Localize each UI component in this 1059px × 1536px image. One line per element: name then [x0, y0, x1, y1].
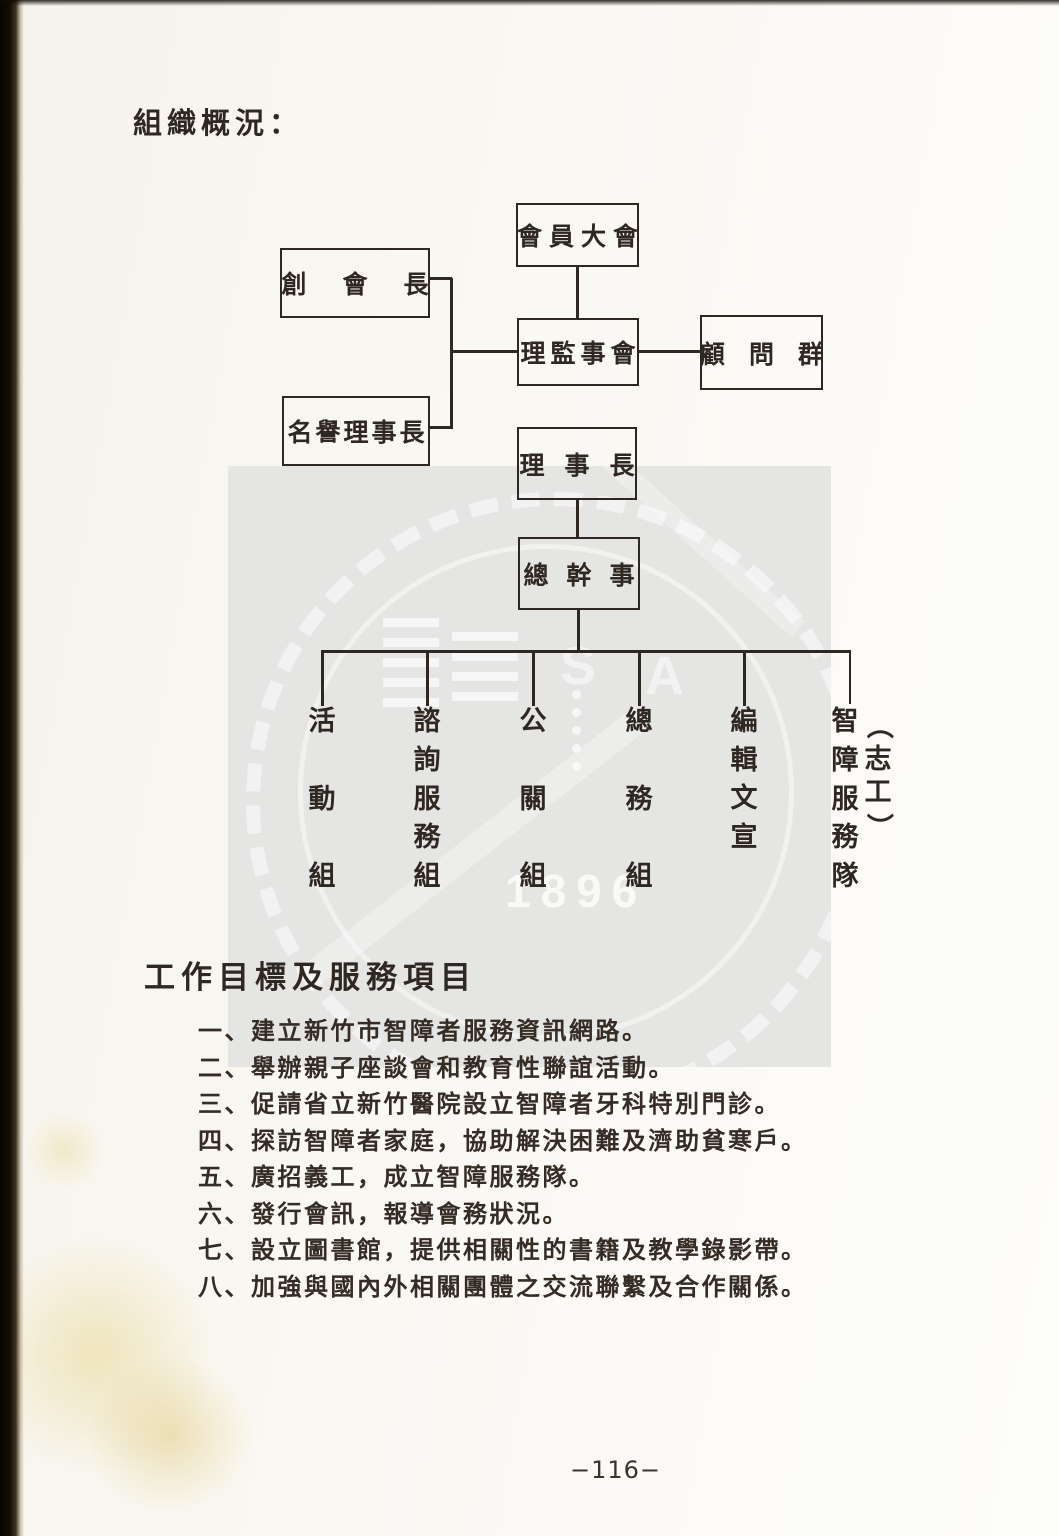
page-number: −116−: [570, 1456, 661, 1484]
goal-item: 六、發行會訊，報導會務狀況。: [198, 1197, 808, 1234]
goals-list: 一、建立新竹市智障者服務資訊網路。二、舉辦親子座談會和教育性聯誼活動。三、促請省…: [198, 1014, 808, 1306]
goal-item: 四、探訪智障者家庭，協助解決困難及濟助貧寒戶。: [198, 1124, 808, 1161]
org-box-chairman: 理事長: [517, 427, 637, 500]
department-label: 編輯文宣: [730, 708, 758, 851]
org-box-honorary-chairman: 名譽理事長: [282, 396, 430, 466]
page-title: 組織概況：: [133, 100, 303, 142]
section-title: 工作目標及服務項目: [144, 952, 477, 997]
scan-top-edge: [0, 0, 1059, 6]
connector-line: [576, 267, 579, 318]
scan-left-edge: [0, 0, 24, 1536]
connector-line: [639, 350, 700, 353]
goal-item: 五、廣招義工，成立智障服務隊。: [198, 1160, 808, 1197]
department-label: 諮詢服務組: [413, 708, 441, 890]
department-label: 總務組: [625, 708, 653, 890]
connector-line: [576, 500, 579, 537]
goal-item: 八、加強與國內外相關團體之交流聯繫及合作關係。: [198, 1270, 808, 1307]
connector-line: [321, 650, 851, 653]
department-label: 智障服務隊: [831, 708, 859, 890]
goal-item: 一、建立新竹市智障者服務資訊網路。: [198, 1014, 808, 1051]
page-content: 組織概況： 會員大會 創會長 理監事會 顧問群 名譽理事長 理事長 總幹事 活動…: [0, 0, 1059, 1536]
connector-line: [450, 278, 453, 429]
department-label: 公關組: [519, 708, 547, 890]
connector-line: [577, 610, 580, 652]
connector-line: [638, 650, 641, 706]
connector-line: [430, 426, 452, 429]
org-box-advisors: 顧問群: [700, 315, 823, 390]
department-annotation: （志工）: [864, 712, 892, 840]
connector-line: [849, 650, 852, 704]
org-box-board: 理監事會: [517, 318, 639, 386]
connector-line: [321, 650, 324, 706]
connector-line: [426, 650, 429, 706]
connector-line: [430, 277, 452, 280]
org-box-secretary-general: 總幹事: [518, 537, 640, 610]
org-box-founding-president: 創會長: [280, 248, 430, 318]
connector-line: [743, 650, 746, 706]
connector-line: [532, 650, 535, 706]
goal-item: 七、設立圖書館，提供相關性的書籍及教學錄影帶。: [198, 1233, 808, 1270]
connector-line: [451, 350, 517, 353]
goal-item: 二、舉辦親子座談會和教育性聯誼活動。: [198, 1051, 808, 1088]
goal-item: 三、促請省立新竹醫院設立智障者牙科特別門診。: [198, 1087, 808, 1124]
department-label: 活動組: [308, 708, 336, 890]
org-box-members-assembly: 會員大會: [516, 203, 639, 267]
